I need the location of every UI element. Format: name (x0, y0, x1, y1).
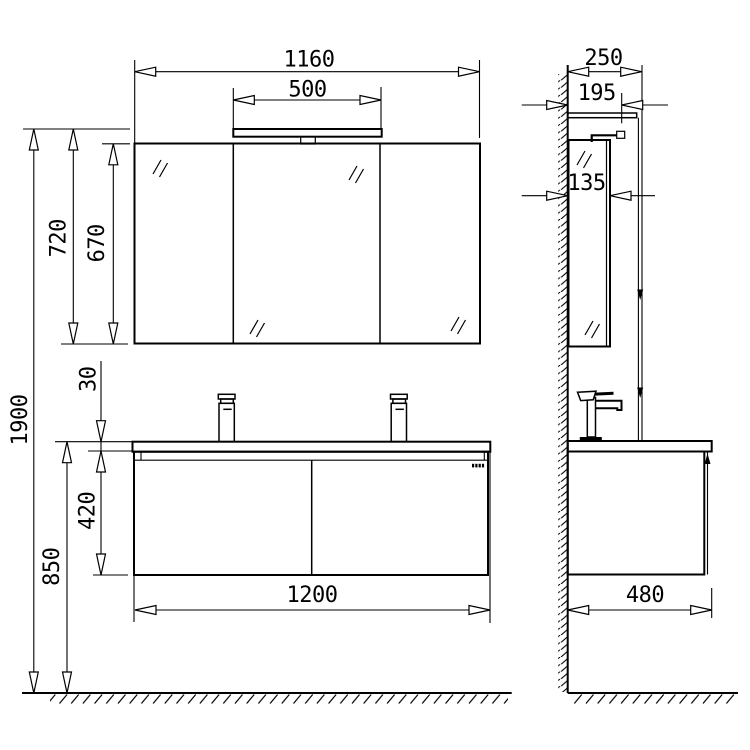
mirror-cabinet-outline (135, 144, 481, 344)
dim-label: 1160 (284, 48, 335, 73)
dim-label: 420 (76, 492, 101, 530)
faucet-right (391, 394, 408, 441)
glass-hatch-icon (250, 320, 265, 337)
top-shelf-side (568, 113, 637, 118)
dim-light-width: 500 (233, 78, 381, 105)
faucet-side-base (580, 437, 602, 442)
faucet-left (218, 394, 235, 441)
dim-floor-to-countertop: 850 (40, 442, 72, 693)
arrowhead (63, 442, 72, 463)
arrowhead (568, 606, 589, 615)
front-view (22, 129, 512, 705)
drawing-svg: 1900 720 670 850 30 (0, 0, 750, 750)
dim-total-depth: 250 (568, 46, 642, 76)
dim-label: 670 (85, 224, 110, 262)
faucet-side (578, 391, 622, 442)
dim-label: 720 (47, 219, 72, 257)
arrowhead (469, 606, 490, 615)
arrowhead (135, 67, 156, 76)
dim-label: 30 (77, 366, 102, 392)
door-handle-knob (617, 131, 625, 138)
glass-hatch-icon (153, 160, 168, 177)
dim-vanity-width: 1200 (135, 583, 490, 615)
arrowhead (97, 421, 106, 442)
mirror-cabinet-side (569, 131, 625, 346)
vanity-side (568, 441, 712, 575)
floor-hatch-front (50, 694, 508, 705)
light-bar (233, 129, 381, 137)
glass-hatch-icon (577, 151, 592, 168)
brand-logo (472, 464, 484, 468)
dim-label: 850 (40, 548, 65, 586)
mirror-cabinet (135, 144, 481, 344)
technical-drawing: 1900 720 670 850 30 (0, 0, 750, 750)
dim-label: 135 (567, 171, 605, 196)
dim-label: 195 (578, 81, 616, 106)
arrowhead (360, 96, 381, 105)
dim-mirror-cabinet-height: 720 (47, 129, 78, 344)
dim-label: 250 (584, 46, 622, 71)
dim-label: 500 (288, 78, 326, 103)
glass-hatch-icon (349, 166, 364, 183)
arrowhead (109, 144, 118, 165)
dim-top-panel-depth: 195 (522, 81, 668, 110)
arrowhead (29, 672, 38, 693)
dim-label: 1900 (8, 395, 33, 446)
light-fixture (233, 129, 381, 144)
arrowhead (69, 323, 78, 344)
dim-mirror-door-height: 670 (85, 144, 118, 344)
dim-label: 480 (626, 583, 664, 608)
faucet-side-spout (596, 401, 622, 410)
arrowhead (29, 129, 38, 150)
arrowhead (109, 323, 118, 344)
arrowhead (691, 606, 712, 615)
glass-hatch-icon (585, 321, 600, 338)
countertop-side (568, 441, 712, 452)
wall-hatch (558, 74, 568, 692)
arrowhead (97, 554, 106, 575)
countertop (133, 442, 491, 452)
vanity-cabinet-side (568, 452, 705, 575)
dim-vanity-depth: 480 (568, 583, 712, 615)
arrowhead (63, 672, 72, 693)
arrowhead (622, 101, 643, 110)
swing-arrow-up-icon (705, 454, 711, 465)
dim-mirror-cabinet-depth: 135 (522, 171, 655, 200)
arrowhead (233, 96, 254, 105)
arrowhead (621, 67, 642, 76)
arrowhead (97, 451, 106, 472)
vanity-unit (133, 442, 491, 575)
arrowhead (135, 606, 156, 615)
arrowhead (69, 129, 78, 150)
faucet-side-body (587, 398, 595, 438)
floor-hatch-side (573, 694, 736, 705)
dim-mirror-cabinet-width: 1160 (135, 48, 480, 77)
glass-hatch-icon (451, 317, 466, 334)
arrowhead (610, 191, 631, 200)
faucet-side-knob (578, 391, 597, 400)
arrowhead (459, 67, 480, 76)
dim-label: 1200 (287, 583, 338, 608)
dim-total-height: 1900 (8, 129, 38, 693)
